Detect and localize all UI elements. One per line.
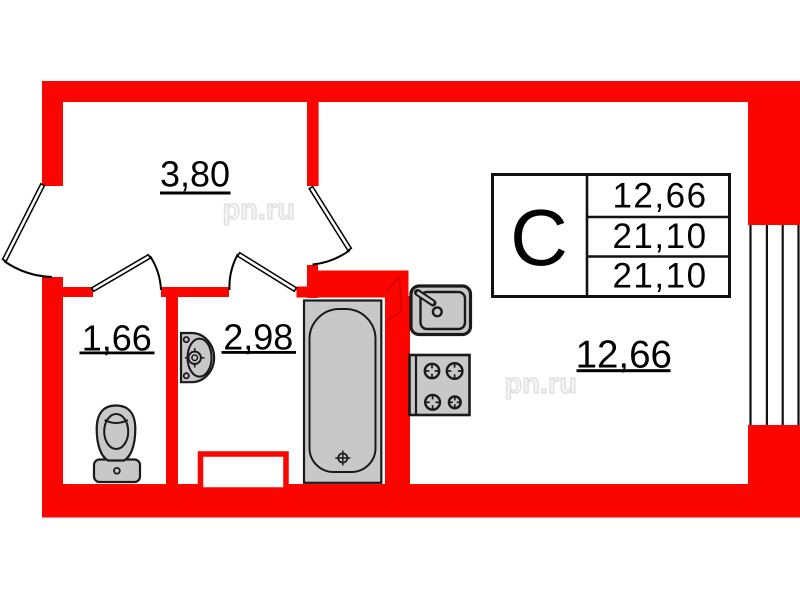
- svg-text:12,66: 12,66: [612, 177, 707, 216]
- svg-text:21,10: 21,10: [612, 217, 707, 256]
- svg-text:pn.ru: pn.ru: [222, 194, 295, 226]
- svg-text:21,10: 21,10: [612, 257, 707, 296]
- svg-text:С: С: [510, 193, 568, 282]
- svg-text:3,80: 3,80: [160, 154, 230, 195]
- svg-text:pn.ru: pn.ru: [504, 368, 577, 400]
